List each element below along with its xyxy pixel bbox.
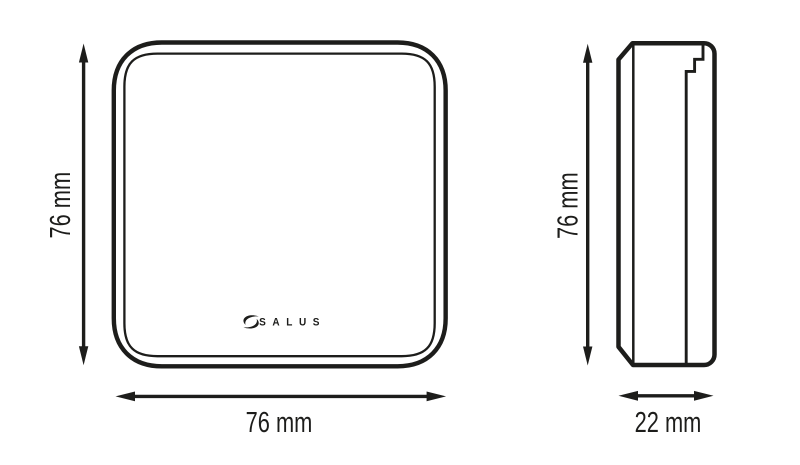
svg-text:SALUS: SALUS [259, 317, 326, 328]
svg-text:76 mm: 76 mm [553, 172, 585, 239]
svg-text:76 mm: 76 mm [246, 407, 313, 439]
svg-text:76 mm: 76 mm [45, 172, 77, 239]
svg-text:22 mm: 22 mm [635, 407, 702, 439]
